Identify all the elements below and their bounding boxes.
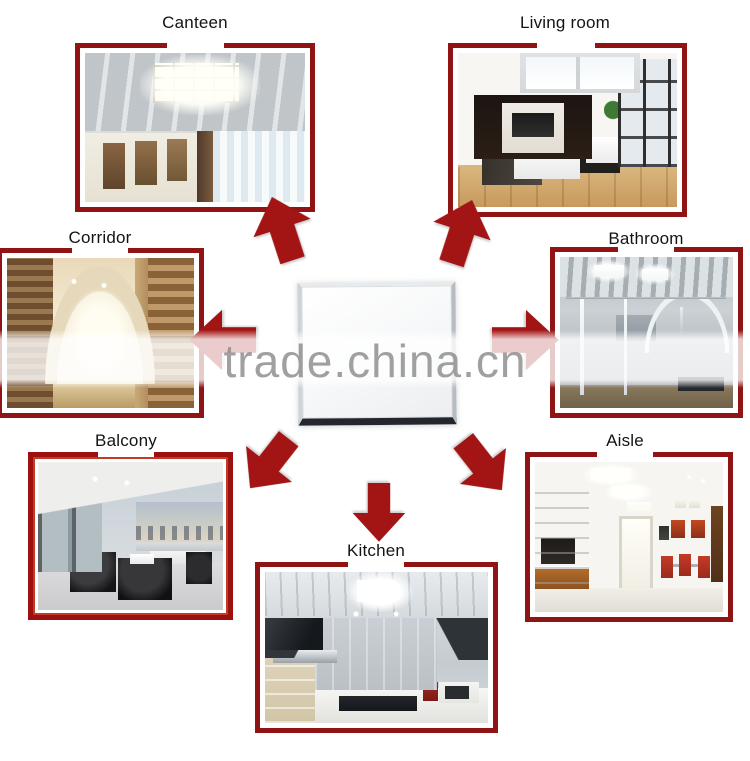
frame-notch — [618, 247, 674, 252]
aisle-card — [525, 452, 733, 622]
kitchen-photo — [265, 572, 488, 723]
bathroom-label: Bathroom — [576, 229, 716, 249]
canteen-card — [75, 43, 315, 212]
balcony-card — [28, 452, 233, 620]
frame-notch — [348, 562, 404, 567]
balcony-label: Balcony — [56, 431, 196, 451]
aisle-photo — [535, 462, 723, 612]
frame-notch — [98, 452, 154, 457]
arrow-down-left-icon — [225, 420, 313, 509]
watermark-text: trade.china.cn — [0, 336, 750, 386]
kitchen-card — [255, 562, 498, 733]
living-room-card — [448, 43, 687, 217]
arrow-down-icon — [351, 483, 407, 543]
canteen-photo — [85, 53, 305, 202]
aisle-label: Aisle — [555, 431, 695, 451]
balcony-photo — [38, 462, 223, 610]
frame-notch — [167, 43, 224, 48]
frame-notch — [537, 43, 595, 48]
living-room-photo — [458, 53, 677, 207]
living-room-label: Living room — [495, 13, 635, 33]
frame-notch — [72, 248, 128, 253]
kitchen-label: Kitchen — [306, 541, 446, 561]
frame-notch — [597, 452, 653, 457]
corridor-label: Corridor — [30, 228, 170, 248]
application-diagram: Canteen Living room Corridor Bathroom Ba… — [0, 0, 750, 761]
arrow-down-right-icon — [439, 422, 527, 511]
canteen-label: Canteen — [125, 13, 265, 33]
